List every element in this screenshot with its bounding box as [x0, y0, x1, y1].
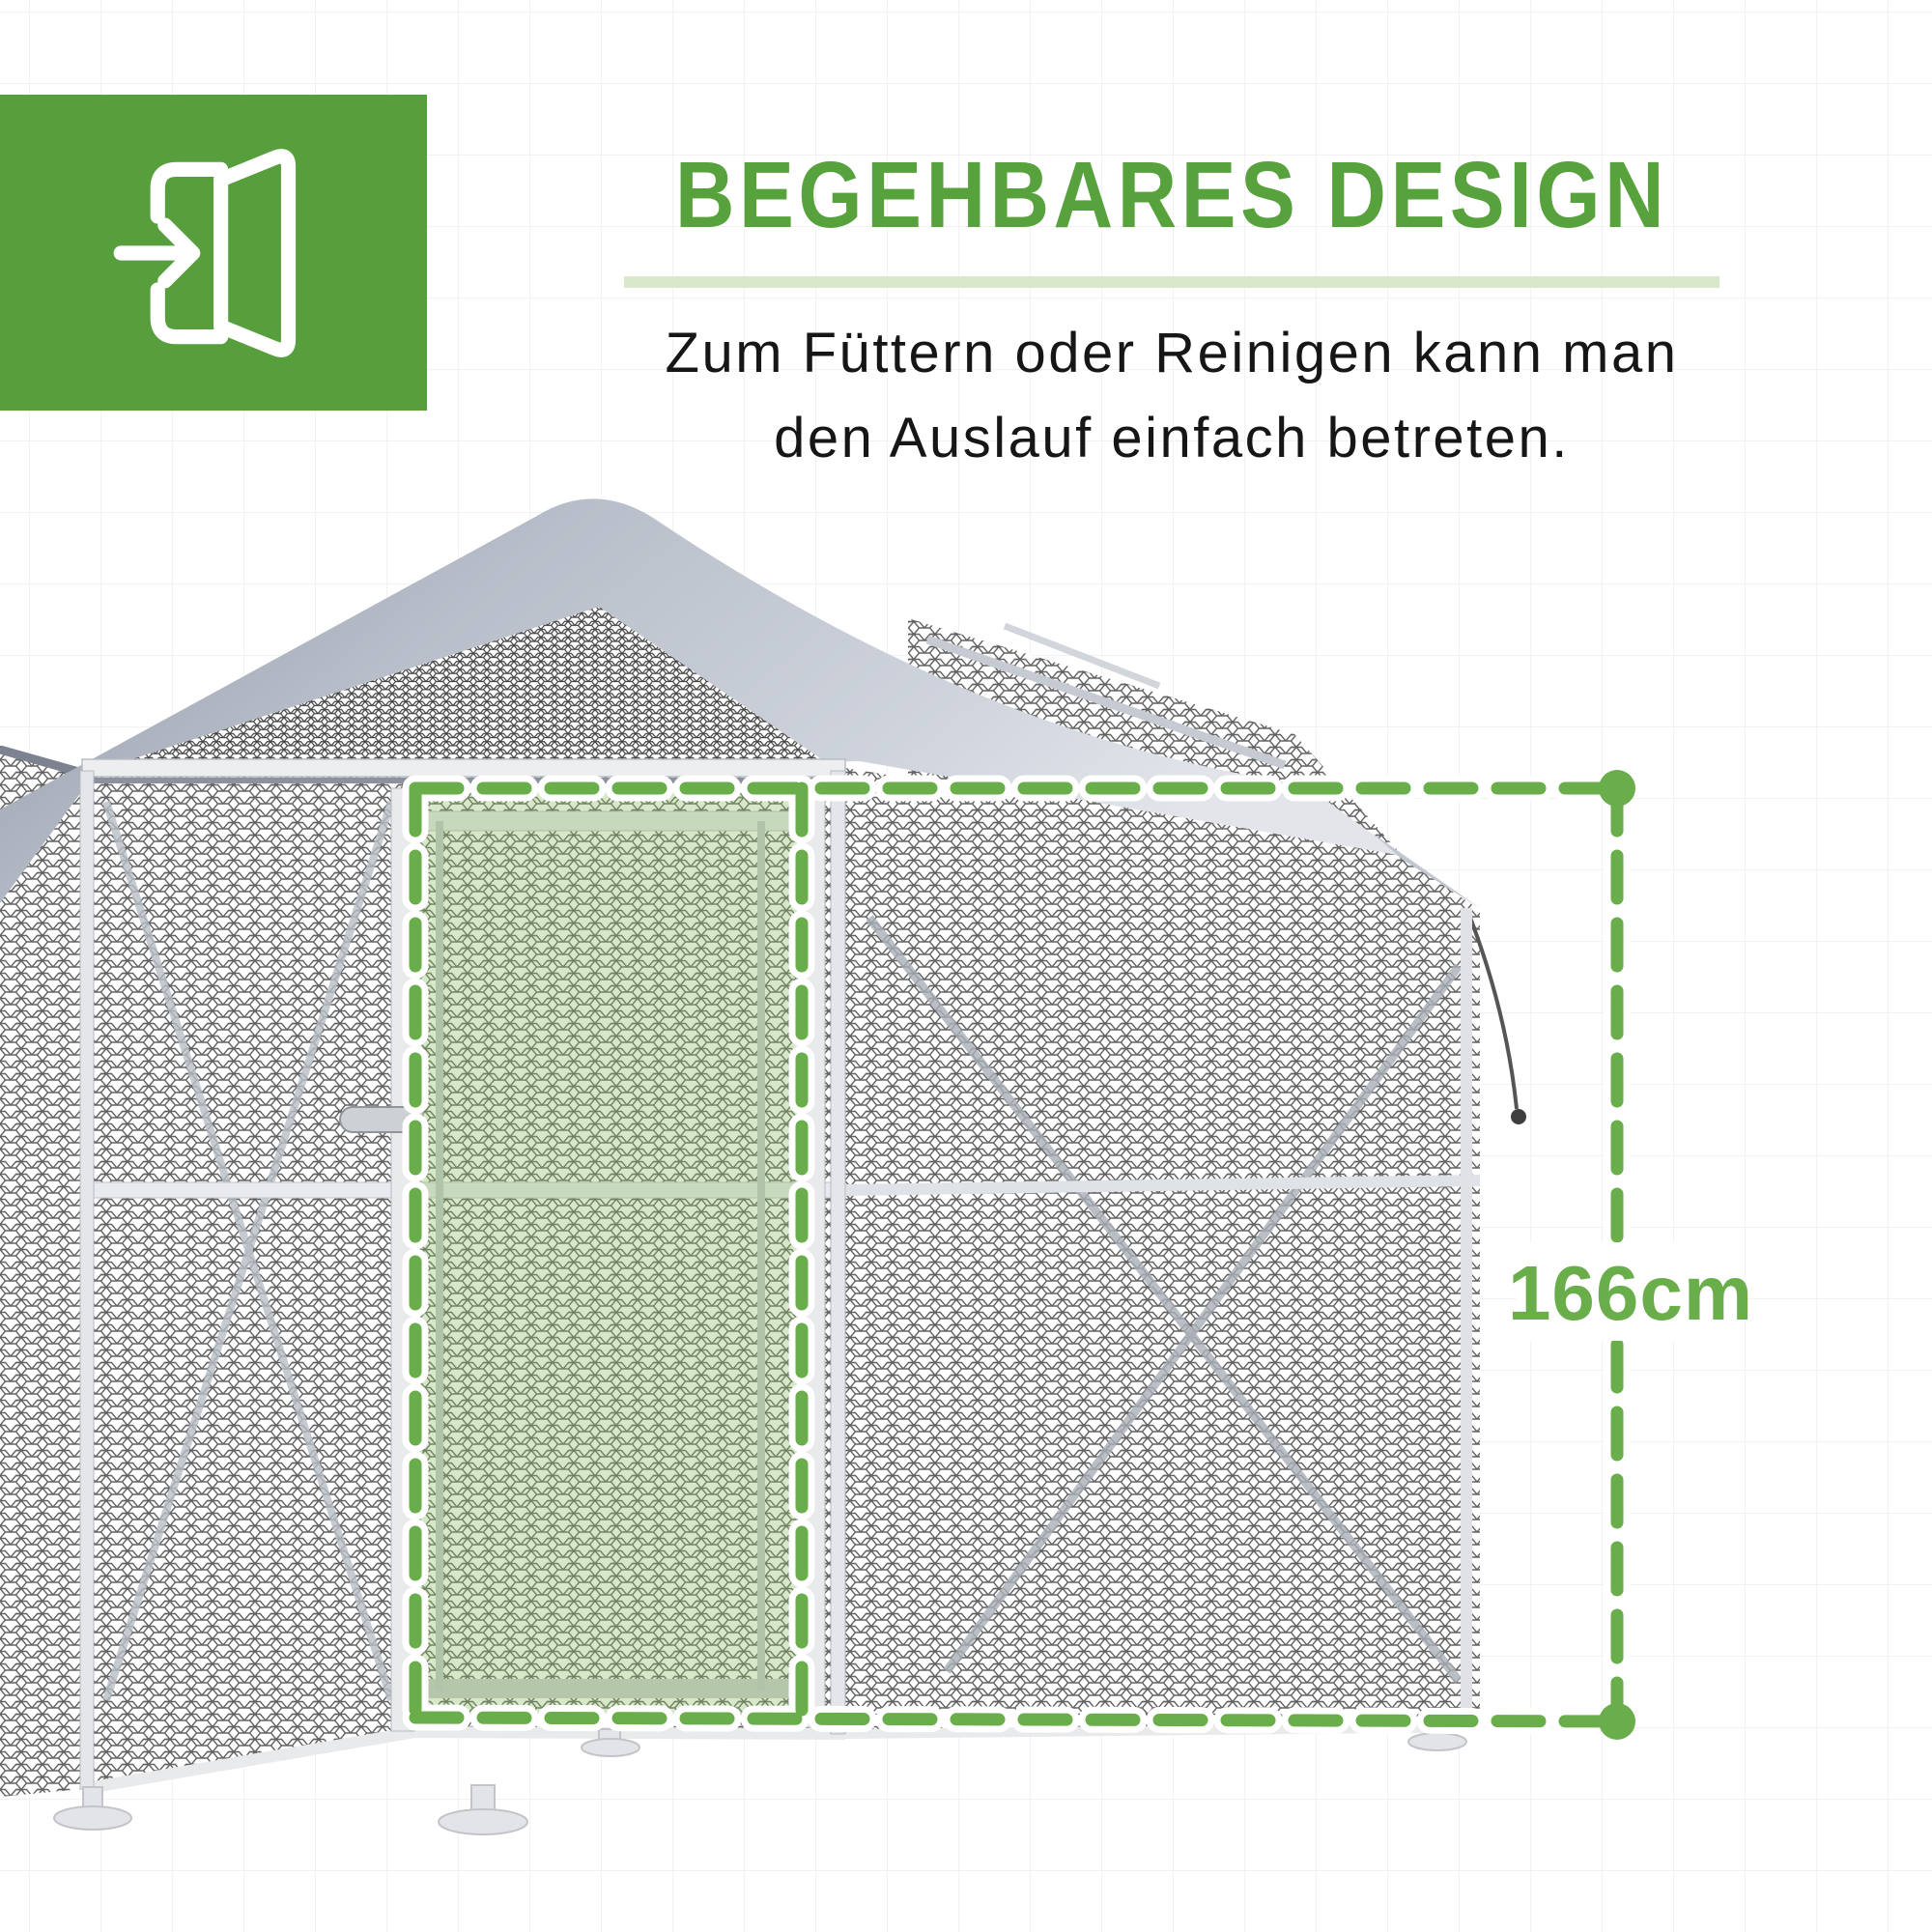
measurement-dot-bottom: [1599, 1703, 1635, 1740]
product-photo: 166cm: [0, 0, 1932, 1932]
right-wing-mesh: [845, 768, 1526, 1734]
measurement-dot-top: [1599, 770, 1635, 807]
measurement-label: 166cm: [1508, 1250, 1753, 1336]
product-infographic: BEGEHBARES DESIGN Zum Füttern oder Reini…: [0, 0, 1932, 1932]
door-highlight: [415, 788, 802, 1718]
tarp-tie-hook: [1511, 1109, 1526, 1124]
left-wing-wall: [0, 746, 82, 1797]
measurement-label-group: 166cm: [1508, 1242, 1753, 1341]
